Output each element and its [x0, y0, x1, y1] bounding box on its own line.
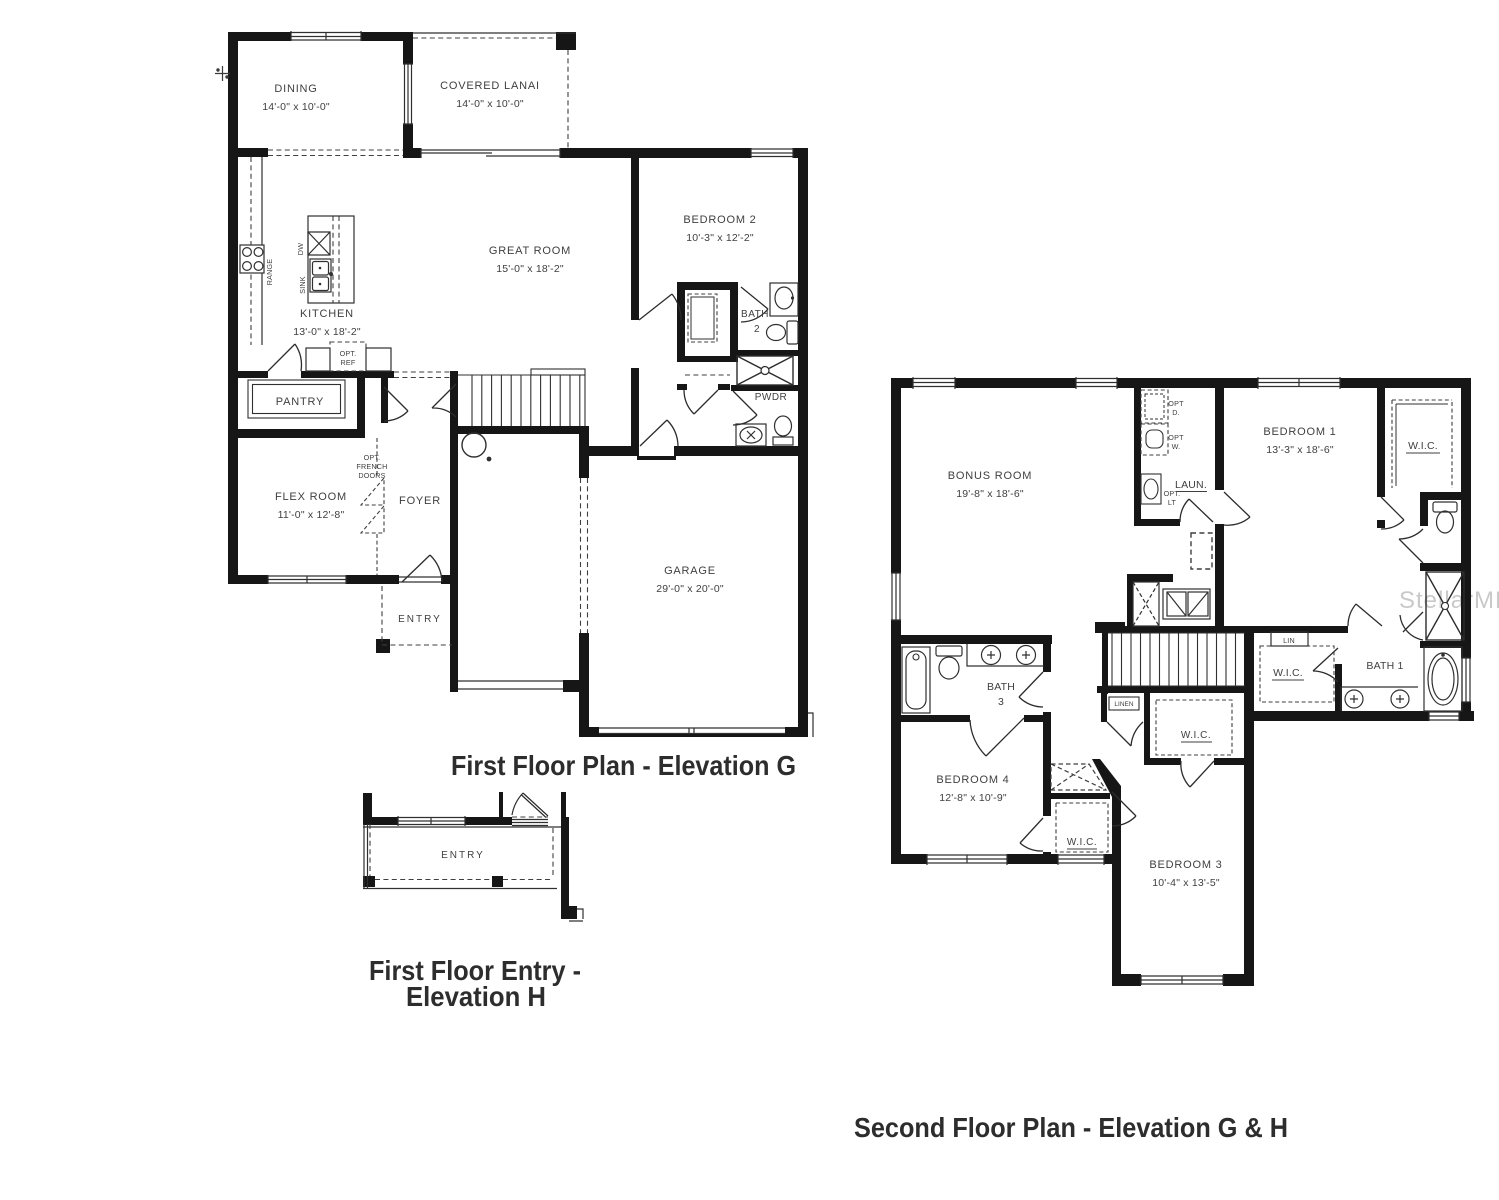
svg-text:OPT: OPT [1168, 433, 1184, 442]
svg-text:D.: D. [1172, 408, 1180, 417]
svg-text:19'-8" x 18'-6": 19'-8" x 18'-6" [956, 488, 1024, 500]
svg-text:BATH: BATH [987, 681, 1015, 693]
svg-text:14'-0" x 10'-0": 14'-0" x 10'-0" [262, 101, 330, 113]
svg-text:OPT.: OPT. [340, 349, 357, 358]
svg-text:W.I.C.: W.I.C. [1408, 440, 1438, 452]
svg-text:13'-0" x 18'-2": 13'-0" x 18'-2" [293, 326, 361, 338]
svg-text:29'-0" x 20'-0": 29'-0" x 20'-0" [656, 583, 724, 595]
svg-text:OPT.: OPT. [1164, 489, 1181, 498]
svg-text:W.I.C.: W.I.C. [1273, 667, 1303, 679]
svg-text:3: 3 [998, 696, 1004, 708]
svg-text:BATH: BATH [741, 309, 769, 320]
svg-text:PWDR: PWDR [755, 392, 788, 403]
svg-text:ENTRY: ENTRY [441, 850, 485, 861]
svg-text:KITCHEN: KITCHEN [300, 308, 354, 320]
svg-text:15'-0" x 18'-2": 15'-0" x 18'-2" [496, 263, 564, 275]
svg-text:W.I.C.: W.I.C. [1067, 837, 1097, 848]
svg-text:COVERED LANAI: COVERED LANAI [440, 80, 540, 92]
svg-text:FOYER: FOYER [399, 495, 441, 507]
svg-text:SINK: SINK [298, 276, 307, 294]
svg-text:11'-0" x 12'-8": 11'-0" x 12'-8" [278, 509, 345, 521]
svg-text:Elevation H: Elevation H [406, 981, 546, 1012]
svg-text:DINING: DINING [274, 83, 317, 95]
svg-text:RANGE: RANGE [265, 259, 274, 286]
svg-text:ENTRY: ENTRY [398, 614, 442, 625]
svg-text:Second Floor Plan - Elevation: Second Floor Plan - Elevation G & H [854, 1112, 1288, 1143]
svg-text:FLEX ROOM: FLEX ROOM [275, 491, 347, 503]
svg-text:LIN: LIN [1283, 636, 1295, 645]
svg-text:14'-0" x 10'-0": 14'-0" x 10'-0" [456, 98, 524, 110]
svg-text:LINEN: LINEN [1114, 701, 1133, 708]
svg-text:W.I.C.: W.I.C. [1181, 730, 1211, 741]
svg-text:StellarMLS: StellarMLS [1399, 587, 1499, 614]
svg-text:13'-3" x 18'-6": 13'-3" x 18'-6" [1266, 444, 1334, 456]
svg-text:BEDROOM 2: BEDROOM 2 [683, 214, 756, 226]
svg-text:BEDROOM 3: BEDROOM 3 [1149, 859, 1222, 871]
svg-text:LT: LT [1168, 498, 1177, 507]
svg-text:12'-8" x 10'-9": 12'-8" x 10'-9" [939, 792, 1007, 804]
svg-text:OPT: OPT [1168, 399, 1184, 408]
svg-text:GREAT ROOM: GREAT ROOM [489, 245, 571, 257]
svg-text:BEDROOM 1: BEDROOM 1 [1263, 426, 1336, 438]
svg-text:DOORS: DOORS [358, 471, 385, 480]
svg-text:OPT.: OPT. [364, 453, 381, 462]
svg-text:10'-4" x 13'-5": 10'-4" x 13'-5" [1152, 877, 1220, 889]
svg-text:BEDROOM 4: BEDROOM 4 [936, 774, 1009, 786]
svg-text:REF: REF [341, 358, 356, 367]
svg-text:DW: DW [296, 243, 305, 255]
svg-text:FRENCH: FRENCH [356, 462, 387, 471]
svg-text:BATH 1: BATH 1 [1366, 660, 1403, 672]
svg-text:W.: W. [1172, 442, 1181, 451]
svg-text:BONUS ROOM: BONUS ROOM [948, 470, 1032, 482]
svg-text:2: 2 [754, 324, 760, 335]
svg-text:PANTRY: PANTRY [276, 396, 324, 408]
svg-text:10'-3" x 12'-2": 10'-3" x 12'-2" [686, 232, 754, 244]
svg-text:GARAGE: GARAGE [664, 565, 716, 577]
svg-text:First Floor Plan - Elevation G: First Floor Plan - Elevation G [451, 750, 796, 781]
